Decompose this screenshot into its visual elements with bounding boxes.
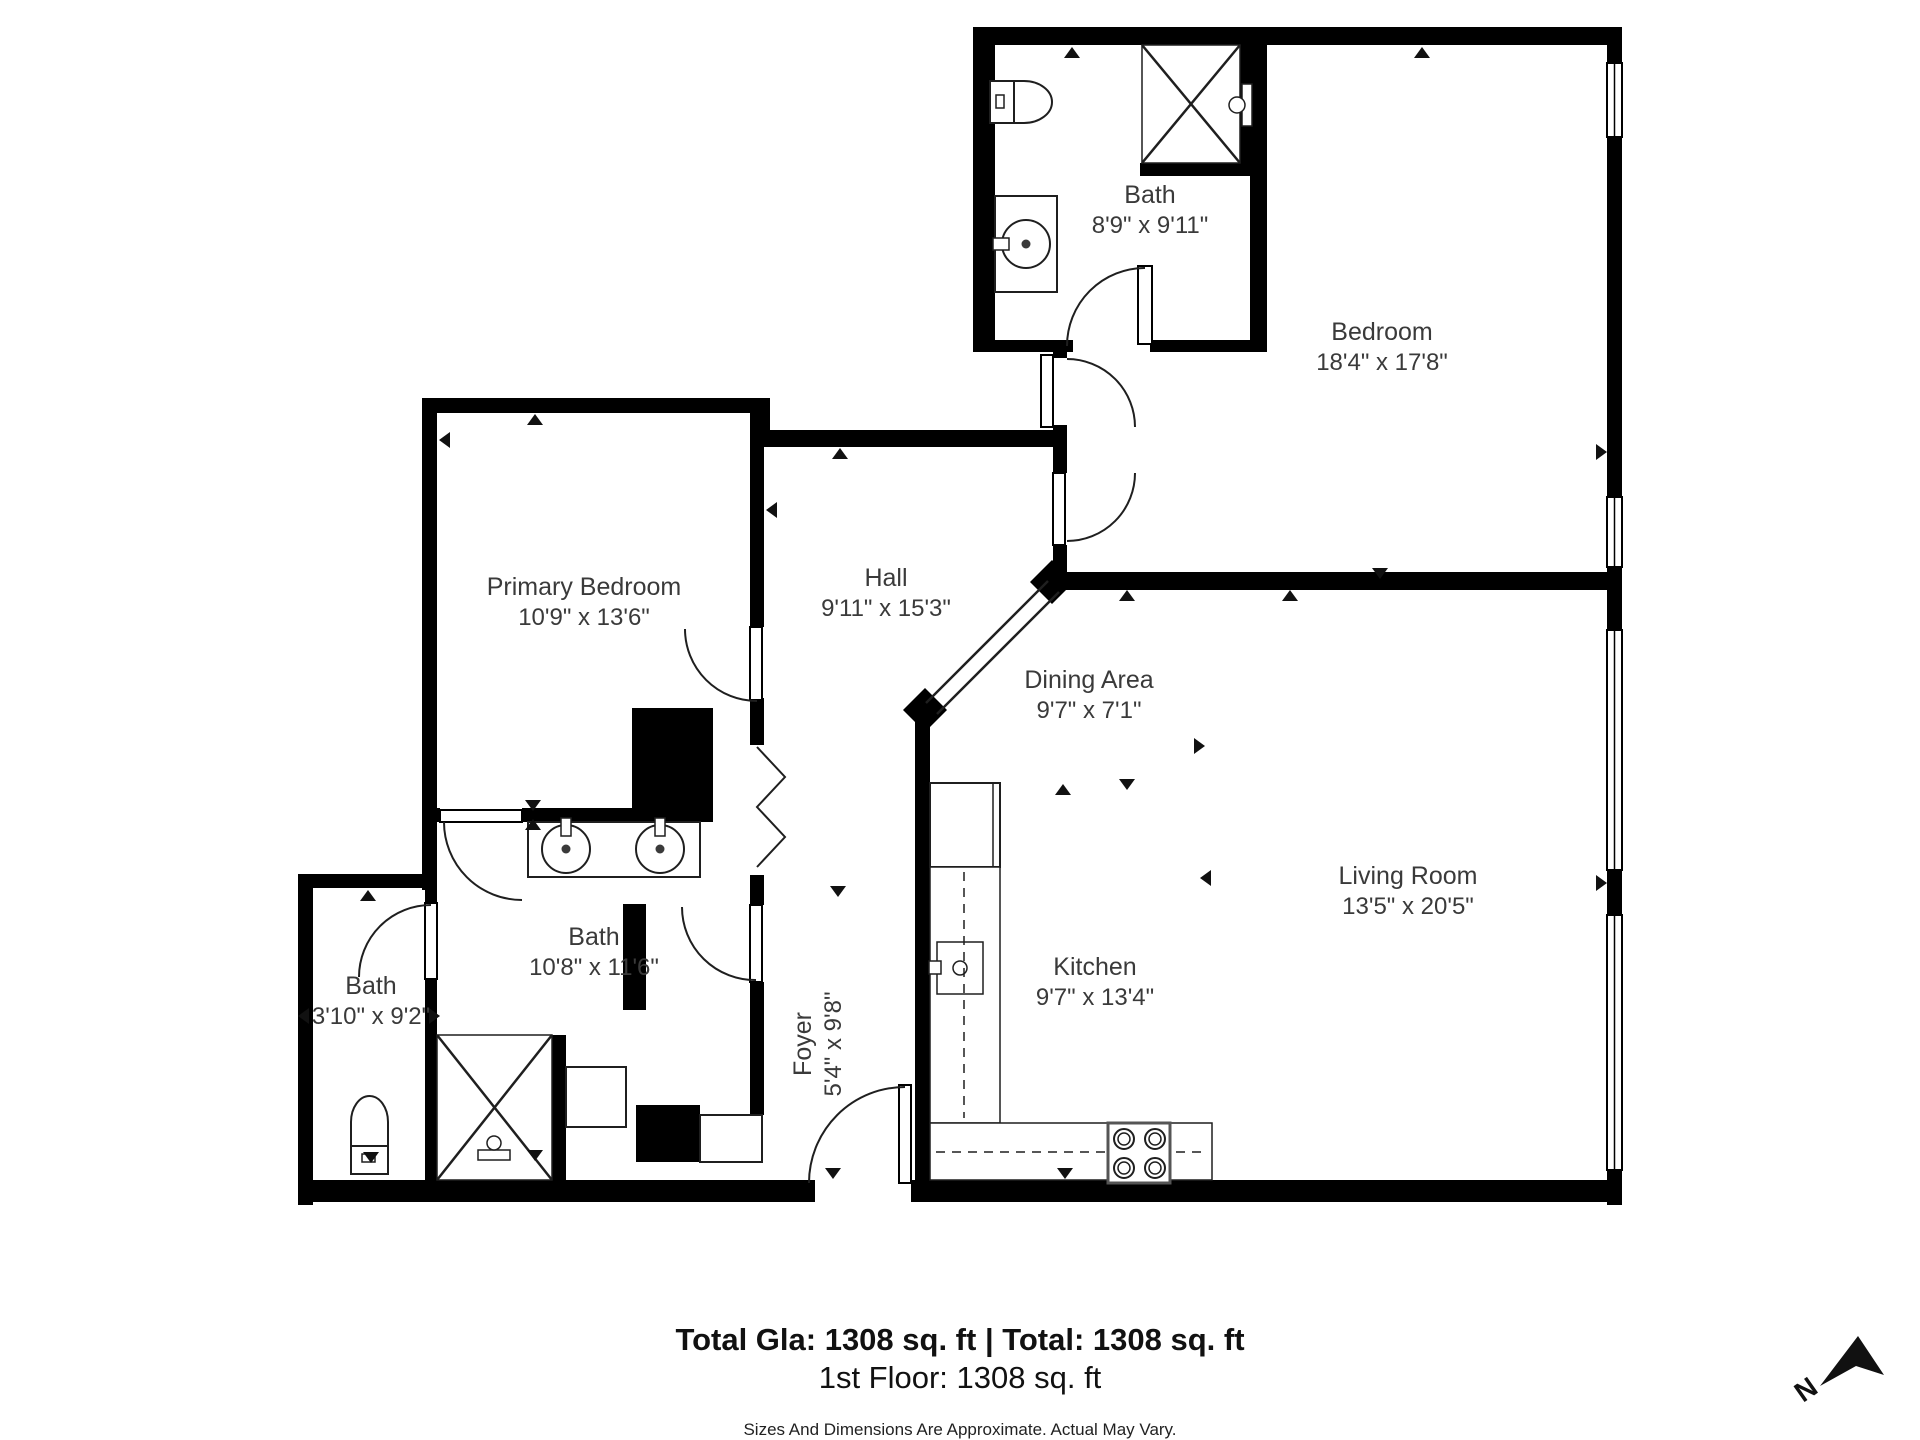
toilet-bowl [351, 1096, 388, 1146]
room-label-primary-bedroom: Primary Bedroom 10'9" x 13'6" [487, 572, 682, 632]
toilet-button [996, 95, 1004, 108]
room-name: Bath [1092, 180, 1209, 211]
faucet-icon [655, 818, 665, 836]
room-name: Primary Bedroom [487, 572, 682, 603]
door-arc [359, 905, 431, 977]
room-label-hall: Hall 9'11" x 15'3" [821, 563, 951, 623]
room-label-dining-area: Dining Area 9'7" x 7'1" [1024, 665, 1153, 725]
dimension-tick [360, 890, 376, 901]
wall [750, 982, 764, 1115]
room-name: Dining Area [1024, 665, 1153, 696]
door-leaf [440, 810, 522, 822]
dimension-tick [1064, 47, 1080, 58]
door-leaf [750, 627, 762, 700]
wall [915, 705, 930, 1180]
room-label-kitchen: Kitchen 9'7" x 13'4" [1036, 952, 1154, 1012]
room-name: Foyer [788, 992, 819, 1097]
room-label-bath-main: Bath 10'8" x 11'6" [529, 922, 659, 982]
wall-block [636, 1105, 700, 1162]
wall [1150, 340, 1267, 352]
door-arc [685, 629, 757, 701]
room-dimensions: 10'9" x 13'6" [487, 603, 682, 632]
room-name: Bath [312, 971, 430, 1002]
wall [422, 808, 440, 822]
wall [1045, 572, 1622, 590]
wall [750, 413, 764, 627]
wall [298, 1180, 815, 1202]
vanity-main-bath [528, 818, 700, 877]
wall [298, 874, 437, 888]
dimension-tick [1282, 590, 1298, 601]
room-label-foyer: Foyer 5'4" x 9'8" [788, 992, 848, 1097]
footer-disclaimer: Sizes And Dimensions Are Approximate. Ac… [0, 1420, 1920, 1440]
room-dimensions: 18'4" x 17'8" [1316, 348, 1448, 377]
room-name: Bedroom [1316, 317, 1448, 348]
door-arc [444, 822, 522, 900]
room-name: Bath [529, 922, 659, 953]
sink-drain [562, 845, 571, 854]
room-dimensions: 9'11" x 15'3" [821, 594, 951, 623]
door-leaf [750, 905, 762, 982]
dimension-tick [830, 886, 846, 897]
dimension-tick [1200, 870, 1211, 886]
dimension-tick [766, 502, 777, 518]
room-name: Living Room [1339, 861, 1478, 892]
wall [522, 808, 632, 822]
dimension-tick [1414, 47, 1430, 58]
wall [552, 1035, 566, 1180]
dimension-tick [1055, 784, 1071, 795]
room-dimensions: 10'8" x 11'6" [529, 953, 659, 982]
dimension-tick [1596, 875, 1607, 891]
door-leaf [425, 903, 437, 979]
room-label-bedroom: Bedroom 18'4" x 17'8" [1316, 317, 1448, 377]
door-leaf [899, 1085, 911, 1183]
room-dimensions: 13'5" x 20'5" [1339, 892, 1478, 921]
wall [973, 27, 995, 352]
door-arc [809, 1087, 905, 1183]
wall [1140, 163, 1254, 176]
dimension-tick [527, 414, 543, 425]
refrigerator [930, 783, 1000, 867]
kitchen-counter-left [930, 867, 1000, 1123]
faucet-icon [993, 238, 1009, 250]
room-dimensions: 5'4" x 9'8" [819, 992, 848, 1097]
shower-top-bath [1142, 45, 1252, 163]
wall [973, 27, 1622, 45]
wall [973, 340, 1073, 352]
footer-floor-area: 1st Floor: 1308 sq. ft [0, 1360, 1920, 1396]
door-leaf [1053, 473, 1065, 545]
dimension-tick [1119, 779, 1135, 790]
shower-head-icon [487, 1136, 501, 1150]
room-dimensions: 8'9" x 9'11" [1092, 211, 1209, 240]
vanity-top-bath [993, 196, 1057, 292]
door-leaf [1041, 355, 1053, 427]
floor-plan-drawing [0, 0, 1920, 1440]
room-dimensions: 9'7" x 13'4" [1036, 983, 1154, 1012]
sink-drain [1022, 240, 1031, 249]
bath-cabinet [566, 1067, 626, 1127]
room-name: Hall [821, 563, 951, 594]
bifold-closet-door [757, 747, 785, 867]
wall [750, 875, 764, 905]
wall [750, 698, 764, 745]
wall [911, 1180, 1622, 1202]
shower-head-icon [1229, 97, 1245, 113]
wall-block [632, 708, 713, 822]
wall [1607, 137, 1622, 497]
room-label-bath-top: Bath 8'9" x 9'11" [1092, 180, 1209, 240]
sink-drain [953, 961, 967, 975]
door-arc [1067, 268, 1145, 346]
stove [1108, 1123, 1170, 1183]
dimension-tick [1119, 590, 1135, 601]
room-dimensions: 3'10" x 9'2" [312, 1002, 430, 1031]
room-name: Kitchen [1036, 952, 1154, 983]
wall [752, 430, 1067, 447]
faucet-icon [929, 961, 941, 974]
toilet-bowl [1014, 81, 1052, 123]
dimension-tick [1194, 738, 1205, 754]
dimension-tick [439, 432, 450, 448]
toilet-top-bath [990, 81, 1052, 123]
sink-drain [656, 845, 665, 854]
door-leaf [1138, 266, 1152, 344]
room-dimensions: 9'7" x 7'1" [1024, 696, 1153, 725]
room-label-living-room: Living Room 13'5" x 20'5" [1339, 861, 1478, 921]
dimension-tick [832, 448, 848, 459]
wall [1607, 870, 1622, 915]
door-arc [1067, 473, 1135, 541]
door-arc [1067, 359, 1135, 427]
toilet-small-bath [351, 1096, 388, 1174]
dimension-tick [825, 1168, 841, 1179]
room-label-bath-small: Bath 3'10" x 9'2" [312, 971, 430, 1031]
wall [422, 398, 770, 413]
footer-total-area: Total Gla: 1308 sq. ft | Total: 1308 sq.… [0, 1322, 1920, 1358]
shower-valve [478, 1150, 510, 1160]
dimension-tick [1596, 444, 1607, 460]
wall [1053, 352, 1067, 358]
faucet-icon [561, 818, 571, 836]
foyer-closet [700, 1115, 762, 1162]
wall [298, 874, 313, 1205]
wall [1607, 27, 1622, 63]
floor-plan-page: Bath 8'9" x 9'11" Bedroom 18'4" x 17'8" … [0, 0, 1920, 1440]
door-arc [682, 907, 756, 980]
